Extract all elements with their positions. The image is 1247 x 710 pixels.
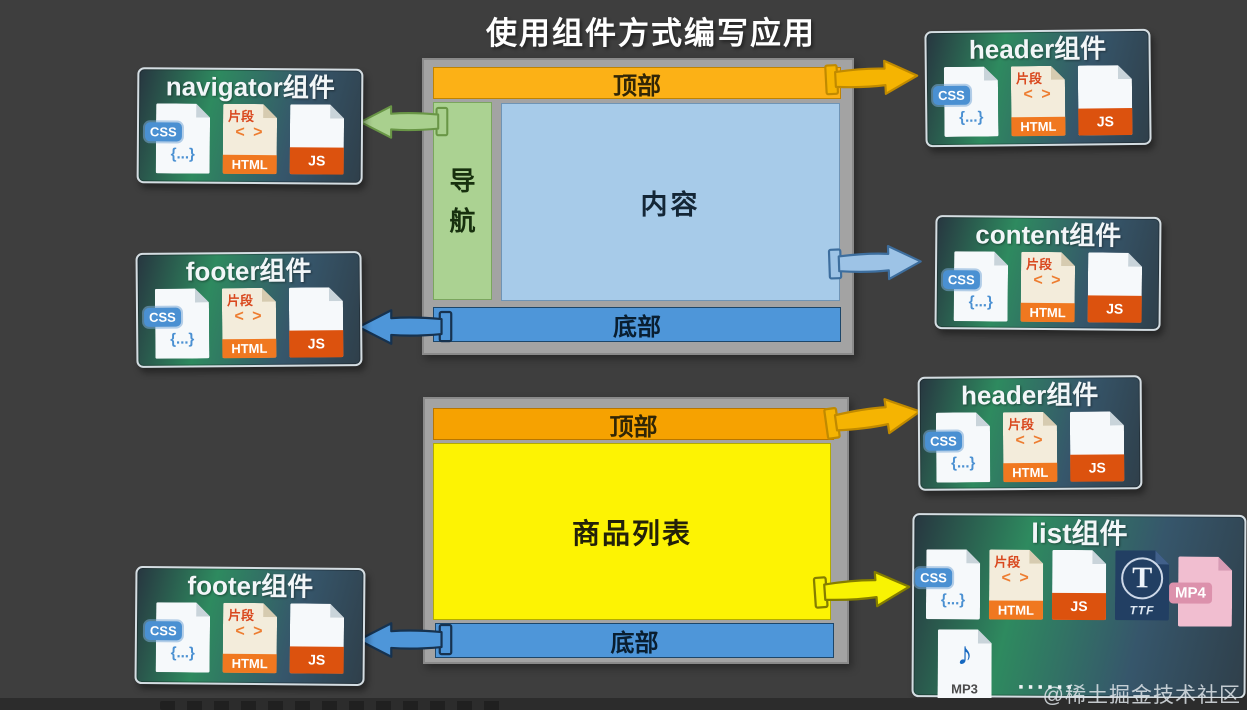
- ttf-file-icon: T TTF: [1115, 550, 1169, 620]
- mp4-file-icon: MP4: [1178, 557, 1232, 627]
- html-code-glyph: < >: [989, 570, 1043, 588]
- component-card-header-1: header组件 CSS {...} 片段 < > HTML JS: [924, 29, 1151, 147]
- js-label: JS: [1070, 454, 1124, 481]
- component-title: header组件: [926, 32, 1148, 67]
- component-card-header-2: header组件 CSS {...} 片段 < > HTML JS: [918, 375, 1143, 491]
- file-fold: [1218, 557, 1232, 571]
- css-braces: {...}: [156, 644, 210, 661]
- css-file-icon: CSS {...}: [155, 288, 210, 358]
- js-file-icon: JS: [1070, 411, 1124, 481]
- js-file-icon: JS: [290, 603, 345, 673]
- component-card-navigator: navigator组件 CSS {...} 片段 < > HTML JS: [137, 67, 364, 185]
- component-card-footer-1: footer组件 CSS {...} 片段 < > HTML JS: [136, 251, 363, 368]
- arrow-bottom1-to-footer: [356, 306, 453, 348]
- js-label: JS: [1078, 108, 1132, 136]
- css-file-icon: CSS {...}: [156, 103, 210, 173]
- music-note-icon: ♪: [938, 635, 992, 671]
- css-badge: CSS: [925, 431, 962, 450]
- html-label: HTML: [989, 601, 1043, 620]
- wireframe-layout-1: 顶部 导航 内容 底部: [422, 58, 854, 355]
- file-fold: [330, 105, 344, 119]
- html-label: HTML: [1021, 303, 1075, 322]
- css-file-icon: CSS {...}: [954, 251, 1009, 321]
- wf1-top-bar: 顶部: [433, 67, 841, 99]
- html-code-glyph: < >: [223, 124, 277, 142]
- file-fold: [263, 603, 277, 617]
- js-label: JS: [289, 330, 343, 357]
- file-fold: [1155, 550, 1169, 564]
- file-fold: [196, 603, 210, 617]
- html-file-icon: 片段 < > HTML: [1003, 412, 1057, 482]
- html-file-icon: 片段 < > HTML: [1021, 252, 1076, 322]
- wf1-content-area: 内容: [501, 103, 840, 301]
- html-file-icon: 片段 < > HTML: [223, 603, 278, 673]
- arrow-bottom2-to-footer2: [356, 619, 453, 661]
- file-fold: [1110, 411, 1124, 425]
- wf2-top-bar-label: 顶部: [610, 407, 658, 442]
- wf2-product-list-label: 商品列表: [572, 512, 692, 552]
- html-fragment-label: 片段: [1008, 414, 1034, 433]
- css-file-icon: CSS {...}: [936, 412, 990, 482]
- html-label: HTML: [222, 339, 276, 358]
- html-fragment-label: 片段: [228, 106, 254, 125]
- html-code-glyph: < >: [1003, 432, 1057, 450]
- component-title: content组件: [937, 218, 1159, 253]
- html-fragment-label: 片段: [228, 605, 254, 624]
- file-fold: [1092, 550, 1106, 564]
- js-file-icon: JS: [1078, 65, 1133, 136]
- component-card-content: content组件 CSS {...} 片段 < > HTML JS: [935, 215, 1162, 331]
- js-label: JS: [290, 147, 344, 174]
- js-label: JS: [290, 646, 344, 673]
- wf2-top-bar: 顶部: [433, 408, 834, 440]
- html-code-glyph: < >: [222, 308, 276, 326]
- file-fold: [195, 288, 209, 302]
- wf1-content-label: 内容: [641, 183, 701, 222]
- js-file-icon: JS: [1088, 252, 1143, 322]
- file-fold: [330, 604, 344, 618]
- css-braces: {...}: [954, 293, 1008, 310]
- mp4-label: MP4: [1169, 582, 1212, 603]
- slide-canvas: 使用组件方式编写应用 顶部 导航 内容 底部 顶部 商品列表 底部: [0, 0, 1247, 710]
- file-fold: [1061, 252, 1075, 266]
- wf1-bottom-bar-label: 底部: [613, 307, 661, 342]
- css-braces: {...}: [155, 330, 209, 347]
- file-fold: [196, 104, 210, 118]
- file-fold: [966, 549, 980, 563]
- file-fold: [1029, 550, 1043, 564]
- file-fold: [329, 287, 343, 301]
- file-fold: [976, 412, 990, 426]
- js-file-icon: JS: [289, 287, 344, 357]
- css-file-icon: CSS {...}: [926, 549, 980, 619]
- file-fold: [1043, 412, 1057, 426]
- mp3-file-icon: ♪ MP3: [938, 629, 992, 699]
- component-title: footer组件: [138, 254, 360, 289]
- wf1-bottom-bar: 底部: [433, 307, 841, 342]
- css-badge: CSS: [943, 270, 980, 289]
- html-label: HTML: [223, 155, 277, 174]
- wireframe-layout-2: 顶部 商品列表 底部: [423, 397, 849, 664]
- css-badge: CSS: [933, 86, 970, 105]
- component-title: footer组件: [137, 569, 363, 604]
- js-label: JS: [1088, 295, 1142, 322]
- html-file-icon: 片段 < > HTML: [222, 288, 277, 358]
- file-fold: [1128, 253, 1142, 267]
- file-fold: [263, 104, 277, 118]
- html-label: HTML: [1011, 117, 1065, 137]
- wf2-bottom-bar: 底部: [435, 623, 834, 658]
- component-title: list组件: [914, 516, 1244, 551]
- component-card-footer-2: footer组件 CSS {...} 片段 < > HTML JS: [134, 566, 365, 686]
- js-file-icon: JS: [1052, 550, 1106, 620]
- cutoff-text-remnant: [160, 701, 505, 710]
- file-fold: [1118, 65, 1132, 79]
- css-file-icon: CSS {...}: [156, 602, 211, 672]
- html-fragment-label: 片段: [1016, 68, 1042, 87]
- html-file-icon: 片段 < > HTML: [223, 104, 277, 174]
- arrow-content-to-content: [818, 241, 932, 285]
- html-file-icon: 片段 < > HTML: [989, 550, 1043, 620]
- html-code-glyph: < >: [1021, 272, 1075, 290]
- html-fragment-label: 片段: [994, 552, 1020, 571]
- css-badge: CSS: [144, 308, 181, 327]
- component-title: navigator组件: [139, 70, 361, 105]
- html-label: HTML: [223, 654, 277, 673]
- css-braces: {...}: [936, 454, 990, 471]
- wf2-product-list-area: 商品列表: [433, 443, 831, 620]
- file-fold: [984, 66, 998, 80]
- html-code-glyph: < >: [1011, 86, 1065, 105]
- component-title: header组件: [920, 378, 1140, 413]
- css-braces: {...}: [926, 591, 980, 608]
- wf1-top-bar-label: 顶部: [613, 66, 661, 101]
- wf2-bottom-bar-label: 底部: [611, 623, 659, 658]
- html-fragment-label: 片段: [227, 290, 253, 309]
- file-fold: [994, 252, 1008, 266]
- html-label: HTML: [1003, 463, 1057, 482]
- arrow-nav-to-navigator: [357, 103, 450, 141]
- js-label: JS: [1052, 593, 1106, 620]
- html-code-glyph: < >: [223, 623, 277, 641]
- css-braces: {...}: [944, 108, 998, 126]
- file-fold: [262, 288, 276, 302]
- mp3-label: MP3: [938, 681, 992, 696]
- css-braces: {...}: [156, 145, 210, 162]
- arrow-list-to-list: [812, 565, 914, 616]
- component-card-list: list组件 CSS {...} 片段 < > HTML JS: [912, 513, 1247, 699]
- arrow-top1-to-header: [819, 55, 925, 100]
- ttf-label: TTF: [1115, 603, 1169, 617]
- css-file-icon: CSS {...}: [944, 66, 999, 137]
- watermark: @稀土掘金技术社区: [1043, 679, 1241, 709]
- css-badge: CSS: [915, 568, 952, 587]
- js-file-icon: JS: [290, 104, 344, 174]
- css-badge: CSS: [145, 621, 182, 640]
- ttf-letter: T: [1121, 557, 1163, 599]
- css-badge: CSS: [145, 122, 182, 141]
- html-fragment-label: 片段: [1026, 254, 1052, 273]
- html-file-icon: 片段 < > HTML: [1011, 66, 1066, 137]
- wf1-nav-label: 导航: [448, 161, 478, 241]
- file-fold: [1051, 66, 1065, 80]
